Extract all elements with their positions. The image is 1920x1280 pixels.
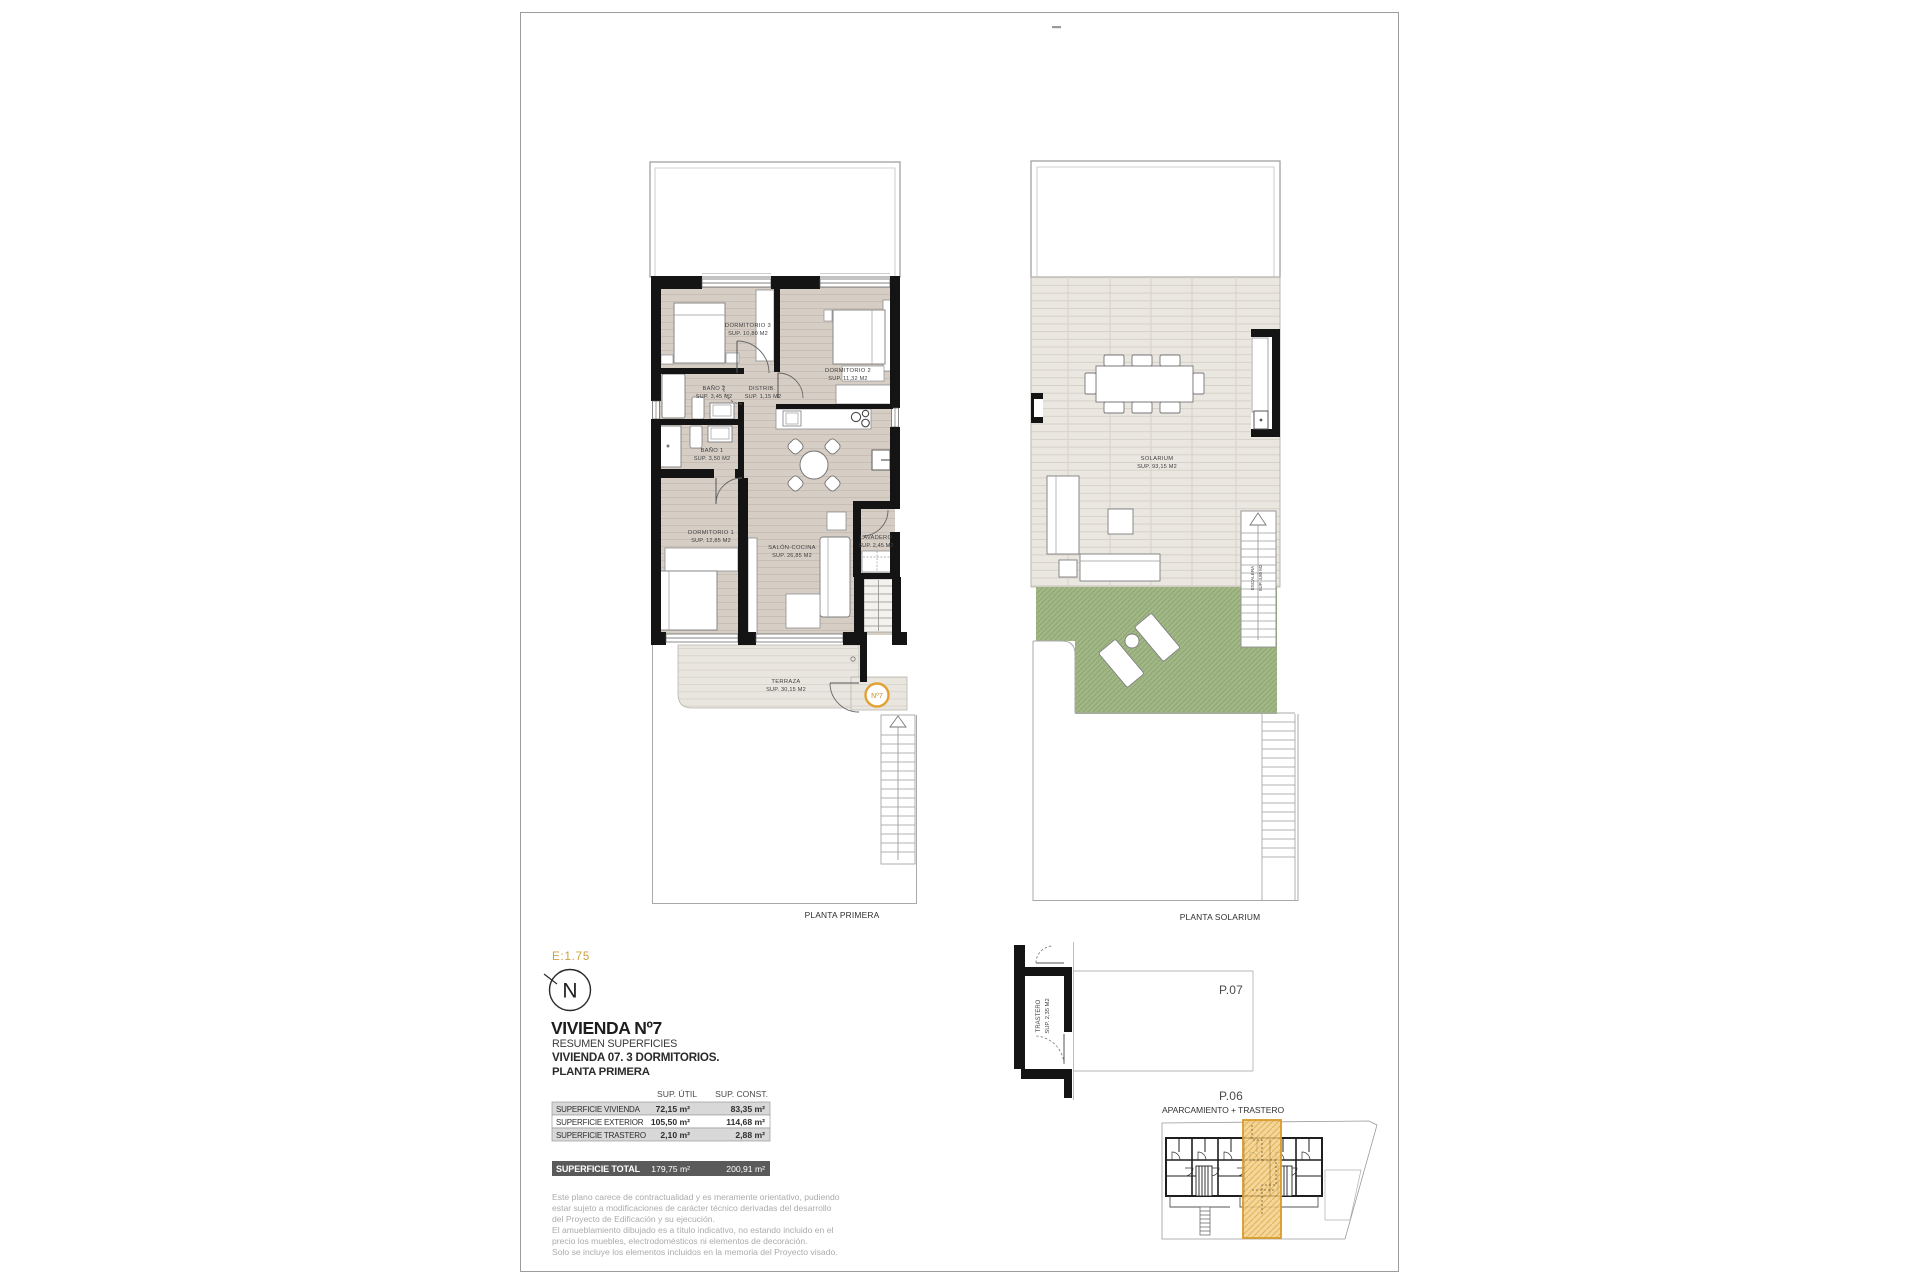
svg-text:SUP. 3,50 M2: SUP. 3,50 M2 [694,456,731,462]
svg-text:DORMITORIO 1: DORMITORIO 1 [688,530,734,536]
svg-text:114,68 m²: 114,68 m² [726,1117,765,1127]
svg-text:SUP. 2,45 M2: SUP. 2,45 M2 [858,543,893,549]
svg-text:SUP. 3,45 M2: SUP. 3,45 M2 [696,394,733,400]
svg-text:VIVIENDA 07. 3 DORMITORIOS.: VIVIENDA 07. 3 DORMITORIOS. [552,1051,719,1064]
svg-text:200,91 m²: 200,91 m² [726,1164,765,1174]
svg-text:SUP. 10,80 M2: SUP. 10,80 M2 [728,331,768,337]
svg-text:SUP. 30,15 M2: SUP. 30,15 M2 [766,687,806,693]
svg-text:BAÑO 1: BAÑO 1 [700,447,723,454]
svg-text:SUPERFICIE EXTERIOR: SUPERFICIE EXTERIOR [556,1118,644,1127]
svg-text:DORMITORIO 3: DORMITORIO 3 [725,323,771,329]
svg-text:72,15 m²: 72,15 m² [656,1104,691,1114]
svg-text:Solo se incluye los elementos: Solo se incluye los elementos incluidos … [552,1247,838,1257]
svg-text:2,88 m²: 2,88 m² [735,1130,765,1140]
svg-text:SUPERFICIE TRASTERO: SUPERFICIE TRASTERO [556,1131,646,1140]
svg-text:SUP. 12,85 M2: SUP. 12,85 M2 [691,538,731,544]
svg-text:SUP. 26,85 M2: SUP. 26,85 M2 [772,553,812,559]
svg-text:El amueblamiento dibujado es a: El amueblamiento dibujado es a título in… [552,1225,833,1235]
svg-text:SUP. 93,15 M2: SUP. 93,15 M2 [1137,464,1177,470]
svg-text:RESUMEN SUPERFICIES: RESUMEN SUPERFICIES [552,1038,677,1050]
svg-text:BAÑO 2: BAÑO 2 [702,385,725,392]
svg-text:2,10 m²: 2,10 m² [660,1130,690,1140]
svg-text:105,50 m²: 105,50 m² [651,1117,690,1127]
svg-text:TRASTERO: TRASTERO [1036,999,1042,1032]
svg-text:83,35 m²: 83,35 m² [731,1104,766,1114]
svg-text:APARCAMIENTO + TRASTERO: APARCAMIENTO + TRASTERO [1162,1105,1285,1115]
svg-text:TERRAZA: TERRAZA [771,679,800,685]
svg-text:SALÓN-COCINA: SALÓN-COCINA [768,544,816,551]
svg-text:PLANTA PRIMERA: PLANTA PRIMERA [552,1066,650,1078]
svg-text:precio los muebles, electrodom: precio los muebles, electrodomésticos ni… [552,1236,808,1246]
svg-text:SUPERFICIE VIVIENDA: SUPERFICIE VIVIENDA [556,1105,641,1114]
svg-text:N: N [562,980,577,1003]
svg-text:PLANTA PRIMERA: PLANTA PRIMERA [805,910,880,920]
svg-text:SOLARIUM: SOLARIUM [1141,456,1174,462]
svg-text:VIVIENDA Nº7: VIVIENDA Nº7 [551,1018,662,1038]
svg-text:DORMITORIO 2: DORMITORIO 2 [825,368,871,374]
svg-text:SUP. CONST.: SUP. CONST. [715,1089,768,1099]
svg-text:SUP. 11,32 M2: SUP. 11,32 M2 [828,376,867,382]
svg-text:Este plano carece de contractu: Este plano carece de contractualidad y e… [552,1192,840,1202]
svg-text:ESCALERA: ESCALERA [1250,565,1255,590]
svg-text:PLANTA SOLARIUM: PLANTA SOLARIUM [1180,912,1261,922]
svg-text:179,75 m²: 179,75 m² [651,1164,690,1174]
svg-text:SUP. 2,35 M2: SUP. 2,35 M2 [1045,998,1051,1033]
svg-text:P.07: P.07 [1219,983,1243,997]
svg-text:estar sujeto a modificaciones: estar sujeto a modificaciones de carácte… [552,1203,832,1213]
svg-text:SUP. 4,80 M2: SUP. 4,80 M2 [1258,564,1263,591]
svg-text:SUPERFICIE TOTAL: SUPERFICIE TOTAL [556,1164,641,1174]
svg-text:P.06: P.06 [1219,1089,1243,1103]
svg-text:SUP. ÚTIL: SUP. ÚTIL [657,1089,697,1099]
svg-text:E:1.75: E:1.75 [552,951,590,963]
svg-text:DISTRIB.: DISTRIB. [749,386,776,392]
svg-text:LAVADERO: LAVADERO [860,535,893,541]
svg-text:Nº7: Nº7 [871,691,883,700]
svg-text:SUP. 1,15 M2: SUP. 1,15 M2 [745,394,782,400]
svg-text:del Proyecto de Edificación y: del Proyecto de Edificación y su ejecuci… [552,1214,715,1224]
